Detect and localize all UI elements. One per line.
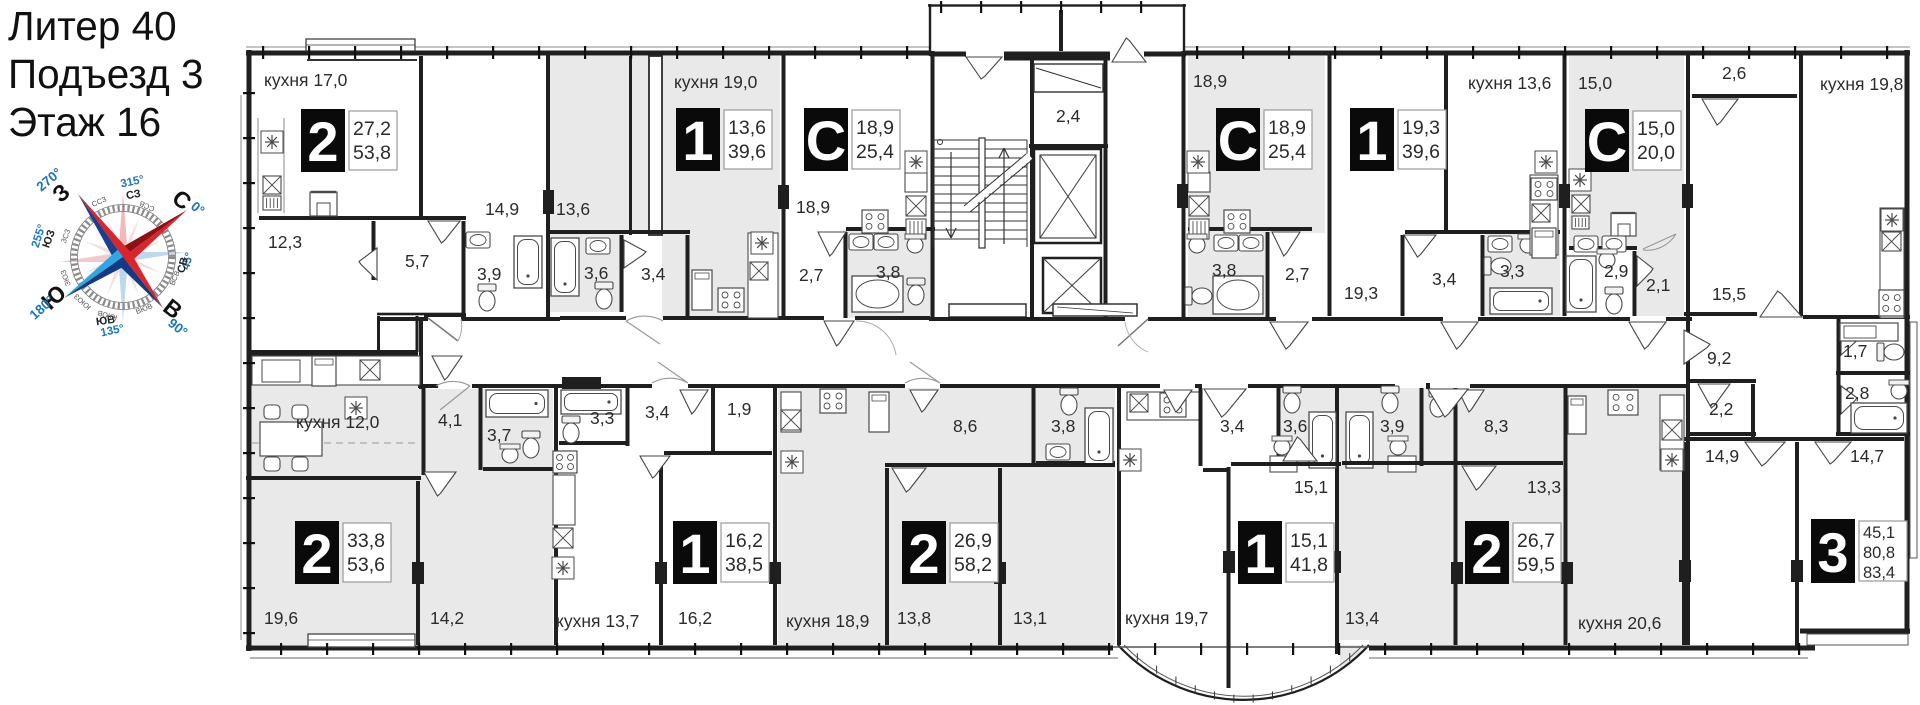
svg-text:19,3: 19,3: [1344, 283, 1378, 303]
svg-text:39,6: 39,6: [728, 141, 766, 163]
svg-text:2,1: 2,1: [1646, 275, 1670, 295]
svg-text:2,8: 2,8: [1845, 383, 1869, 403]
svg-text:кухня 12,0: кухня 12,0: [296, 412, 380, 432]
svg-text:13,6: 13,6: [556, 199, 590, 219]
svg-text:2,9: 2,9: [1604, 261, 1628, 281]
svg-text:3,4: 3,4: [1220, 416, 1245, 436]
svg-text:13,1: 13,1: [1013, 608, 1047, 628]
svg-text:1: 1: [682, 109, 713, 172]
svg-text:3,4: 3,4: [1432, 269, 1457, 289]
svg-text:1: 1: [1356, 109, 1387, 172]
svg-text:2,4: 2,4: [1056, 106, 1081, 126]
svg-text:45,1: 45,1: [1863, 524, 1895, 542]
svg-text:18,9: 18,9: [796, 197, 830, 217]
svg-text:14,7: 14,7: [1850, 446, 1884, 466]
svg-text:4,1: 4,1: [438, 410, 462, 430]
svg-text:27,2: 27,2: [353, 118, 391, 140]
svg-text:3,6: 3,6: [584, 263, 608, 283]
svg-text:кухня 19,8: кухня 19,8: [1820, 74, 1903, 94]
svg-text:кухня 20,6: кухня 20,6: [1578, 613, 1661, 633]
svg-text:8,6: 8,6: [953, 416, 977, 436]
svg-text:3,8: 3,8: [1051, 416, 1075, 436]
svg-text:19,3: 19,3: [1402, 117, 1440, 139]
svg-text:3: 3: [1817, 521, 1848, 584]
svg-text:15,0: 15,0: [1578, 73, 1612, 93]
svg-text:2,7: 2,7: [799, 265, 823, 285]
svg-text:26,9: 26,9: [954, 530, 992, 552]
svg-text:3,8: 3,8: [876, 262, 900, 282]
svg-text:19,6: 19,6: [264, 608, 298, 628]
svg-text:3,7: 3,7: [487, 425, 511, 445]
svg-text:2: 2: [908, 522, 939, 585]
svg-text:2: 2: [301, 522, 332, 585]
svg-text:13,8: 13,8: [897, 608, 931, 628]
svg-text:15,1: 15,1: [1290, 530, 1328, 552]
svg-text:8,3: 8,3: [1484, 416, 1508, 436]
svg-text:кухня 13,6: кухня 13,6: [1468, 73, 1551, 93]
svg-text:80,8: 80,8: [1863, 544, 1895, 562]
svg-text:59,5: 59,5: [1517, 554, 1555, 576]
svg-text:Этаж 16: Этаж 16: [8, 99, 161, 145]
svg-text:3,4: 3,4: [645, 402, 670, 422]
svg-text:16,2: 16,2: [678, 608, 712, 628]
svg-text:15,5: 15,5: [1712, 284, 1746, 304]
svg-text:СЗ: СЗ: [125, 188, 142, 202]
svg-text:С: С: [1587, 110, 1627, 173]
svg-text:1: 1: [679, 522, 710, 585]
svg-text:кухня 19,7: кухня 19,7: [1125, 608, 1208, 628]
svg-text:кухня 13,7: кухня 13,7: [556, 611, 639, 631]
svg-text:38,5: 38,5: [725, 554, 763, 576]
svg-text:2: 2: [1471, 522, 1502, 585]
svg-text:26,7: 26,7: [1517, 530, 1555, 552]
svg-text:25,4: 25,4: [856, 141, 894, 163]
svg-text:53,6: 53,6: [347, 554, 385, 576]
svg-text:13,6: 13,6: [728, 117, 766, 139]
svg-text:14,9: 14,9: [1705, 446, 1739, 466]
svg-text:15,0: 15,0: [1637, 118, 1675, 140]
svg-text:25,4: 25,4: [1268, 141, 1306, 163]
svg-text:3,9: 3,9: [477, 264, 501, 284]
svg-text:16,2: 16,2: [725, 530, 763, 552]
svg-text:3,3: 3,3: [1500, 261, 1524, 281]
svg-text:3,4: 3,4: [641, 264, 666, 284]
svg-text:кухня 18,9: кухня 18,9: [786, 611, 869, 631]
svg-text:41,8: 41,8: [1290, 554, 1328, 576]
svg-text:2,2: 2,2: [1709, 399, 1733, 419]
svg-text:14,9: 14,9: [485, 199, 519, 219]
svg-text:5,7: 5,7: [405, 251, 429, 271]
svg-text:1: 1: [1244, 522, 1275, 585]
svg-text:18,9: 18,9: [1268, 117, 1306, 139]
svg-text:12,3: 12,3: [268, 232, 302, 252]
svg-text:9,2: 9,2: [1707, 348, 1731, 368]
svg-text:1,9: 1,9: [727, 399, 751, 419]
svg-text:2,7: 2,7: [1285, 264, 1309, 284]
svg-text:18,9: 18,9: [1193, 71, 1227, 91]
svg-text:Литер 40: Литер 40: [8, 3, 177, 49]
svg-text:2: 2: [307, 110, 338, 173]
svg-text:15,1: 15,1: [1294, 477, 1328, 497]
svg-text:58,2: 58,2: [954, 554, 992, 576]
svg-text:20,0: 20,0: [1637, 142, 1675, 164]
svg-text:53,8: 53,8: [353, 142, 391, 164]
svg-text:3,9: 3,9: [1380, 416, 1404, 436]
svg-text:39,6: 39,6: [1402, 141, 1440, 163]
svg-text:13,4: 13,4: [1345, 608, 1379, 628]
svg-text:кухня 19,0: кухня 19,0: [674, 72, 758, 92]
svg-text:33,8: 33,8: [347, 530, 385, 552]
svg-text:2,6: 2,6: [1722, 63, 1746, 83]
svg-text:1,7: 1,7: [1843, 341, 1867, 361]
svg-text:3,8: 3,8: [1212, 260, 1236, 280]
svg-text:3,3: 3,3: [590, 408, 614, 428]
svg-text:14,2: 14,2: [430, 608, 464, 628]
svg-text:кухня 17,0: кухня 17,0: [264, 70, 348, 90]
svg-text:13,3: 13,3: [1527, 477, 1561, 497]
svg-text:3,6: 3,6: [1283, 416, 1307, 436]
svg-text:18,9: 18,9: [856, 117, 894, 139]
svg-text:83,4: 83,4: [1863, 564, 1895, 582]
svg-text:С: С: [1218, 109, 1258, 172]
svg-text:Подъезд 3: Подъезд 3: [8, 51, 204, 97]
svg-text:С: С: [806, 109, 846, 172]
